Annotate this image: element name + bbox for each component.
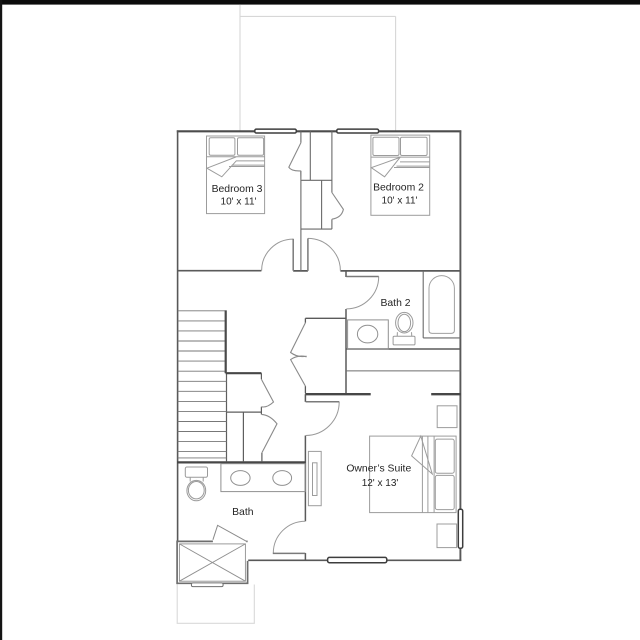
svg-text:12' x 13': 12' x 13' [362, 478, 399, 489]
svg-text:Owner’s Suite: Owner’s Suite [346, 464, 411, 475]
svg-text:10' x 11': 10' x 11' [221, 197, 257, 208]
svg-text:Bath: Bath [232, 507, 254, 518]
svg-text:Bedroom 2: Bedroom 2 [373, 183, 424, 194]
svg-text:Bath 2: Bath 2 [380, 298, 410, 309]
svg-text:Bedroom 3: Bedroom 3 [212, 184, 263, 195]
svg-text:10' x 11': 10' x 11' [382, 196, 418, 207]
